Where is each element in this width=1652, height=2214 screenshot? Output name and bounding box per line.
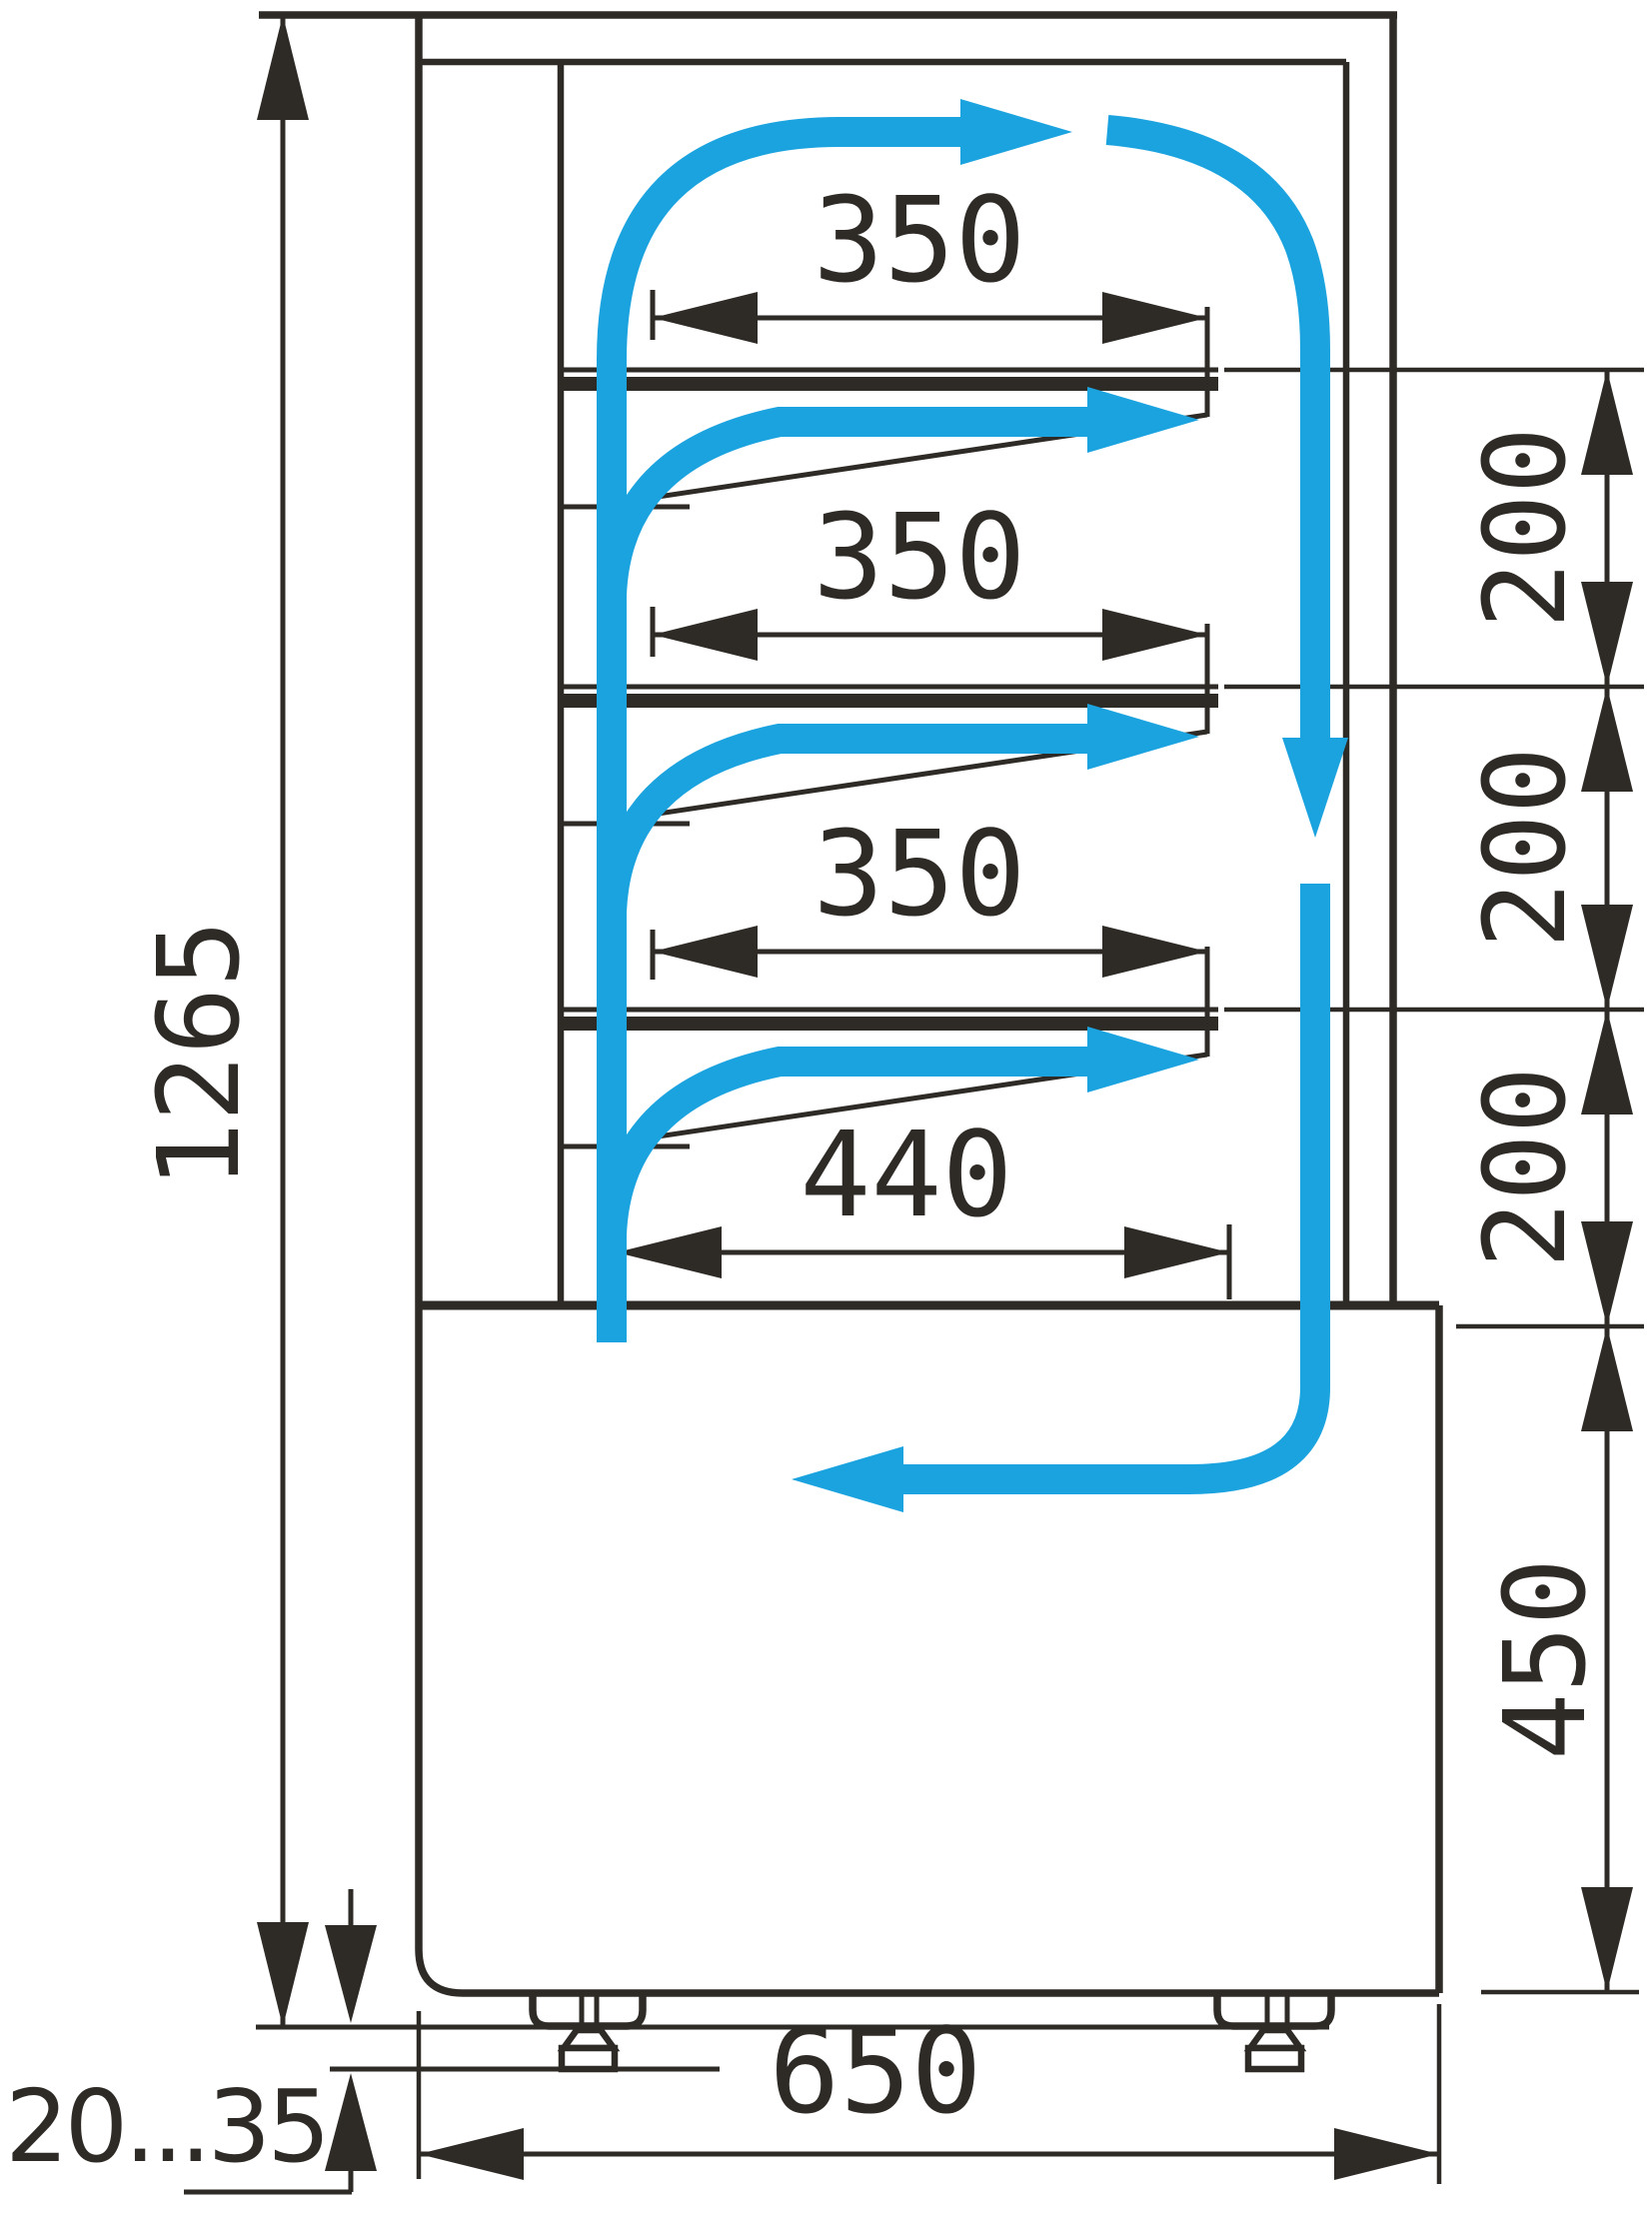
dim-bottom-shelf-440: 440 [617, 1106, 1229, 1299]
dim-label-gap3: 200 [1461, 1067, 1591, 1268]
arrow-down-4 [1581, 1887, 1633, 1992]
dim-label-gap2: 200 [1461, 747, 1591, 949]
arrow-right [1334, 2128, 1439, 2180]
arrow-right [1102, 926, 1207, 978]
cabinet-outline [259, 15, 1439, 1993]
dim-overall-height: 1265 [135, 15, 309, 2027]
arrow-left [419, 2128, 524, 2180]
arrow-down [325, 1925, 377, 2023]
dim-label-shelf3: 350 [813, 805, 1025, 943]
dim-label-overall-height: 1265 [135, 920, 265, 1189]
dim-label-shelf1: 350 [813, 171, 1025, 309]
right-foot [1217, 1994, 1331, 2069]
dim-shelf3-350: 350 [653, 805, 1207, 978]
dim-label-shelf2: 350 [813, 488, 1025, 626]
left-wall-and-bottom [419, 15, 1439, 1993]
dim-label-base-height: 450 [1481, 1558, 1611, 1760]
arrow-bottom [257, 1922, 309, 2027]
dim-chain-right: 200 200 200 450 [1224, 370, 1644, 1992]
airflow-down-arrow-icon [1282, 738, 1348, 838]
arrow-right [1124, 1226, 1229, 1278]
foot-flange [533, 1994, 643, 2026]
airflow-top-arrow-icon [960, 99, 1072, 165]
arrow-up [325, 2073, 377, 2171]
dim-shelf1-350: 350 [653, 171, 1207, 344]
display-case-section-diagram: 350 350 350 440 200 200 [0, 0, 1652, 2214]
left-foot [533, 1994, 643, 2069]
airflow-shelf2-arrow-icon [1087, 704, 1199, 770]
foot-flange [1217, 1994, 1331, 2026]
arrow-right [1102, 609, 1207, 661]
dim-label-gap1: 200 [1461, 427, 1591, 629]
airflow-shelf3-arrow-icon [1087, 1027, 1199, 1093]
arrow-up-4 [1581, 1326, 1633, 1431]
arrow-right [1102, 292, 1207, 344]
dim-shelf2-350: 350 [653, 488, 1207, 661]
dim-label-bottom-shelf: 440 [800, 1106, 1012, 1243]
arrow-left [653, 609, 758, 661]
dim-label-overall-depth: 650 [769, 2002, 981, 2140]
airflow-shelf1-arrow-icon [1087, 387, 1199, 453]
foot-plate [1248, 2048, 1301, 2069]
dim-foot-adjust: 20...35 [5, 1889, 377, 2192]
arrow-left [653, 926, 758, 978]
arrow-left [653, 292, 758, 344]
arrow-top [257, 15, 309, 120]
airflow-left-arrow-icon [792, 1446, 903, 1512]
dim-label-foot-adjust: 20...35 [5, 2068, 327, 2185]
arrow-left [617, 1226, 722, 1278]
drawing-canvas: 350 350 350 440 200 200 [0, 0, 1652, 2214]
foot-plate [562, 2048, 615, 2069]
